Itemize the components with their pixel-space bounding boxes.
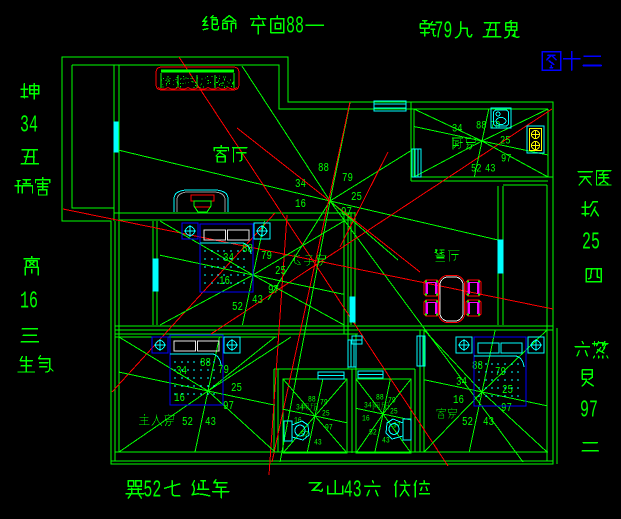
svg-text:43: 43 <box>314 439 322 448</box>
svg-text:88: 88 <box>200 357 211 370</box>
svg-text:25: 25 <box>582 230 600 257</box>
svg-text:25: 25 <box>322 410 330 419</box>
svg-text:43: 43 <box>252 294 263 307</box>
svg-text:52: 52 <box>182 416 193 429</box>
svg-text:34: 34 <box>295 178 306 191</box>
svg-text:79: 79 <box>320 399 328 408</box>
svg-text:88: 88 <box>318 162 329 175</box>
svg-text:16: 16 <box>362 415 370 424</box>
svg-text:25: 25 <box>351 191 362 204</box>
svg-text:52: 52 <box>369 429 377 438</box>
svg-text:79: 79 <box>261 250 272 263</box>
svg-text:25: 25 <box>231 382 242 395</box>
svg-text:97: 97 <box>325 424 333 433</box>
svg-text:88: 88 <box>308 396 316 405</box>
svg-text:25: 25 <box>275 265 286 278</box>
svg-text:79: 79 <box>218 364 229 377</box>
svg-text:43: 43 <box>344 478 362 505</box>
svg-text:88: 88 <box>376 394 384 403</box>
svg-text:79: 79 <box>434 19 452 46</box>
svg-text:97: 97 <box>501 153 512 165</box>
svg-text:34: 34 <box>456 376 467 389</box>
svg-text:25: 25 <box>502 384 513 397</box>
svg-text:79: 79 <box>388 397 396 406</box>
svg-text:97: 97 <box>580 398 598 425</box>
svg-text:34: 34 <box>176 365 187 378</box>
svg-text:16: 16 <box>295 198 306 211</box>
svg-text:34: 34 <box>364 402 372 411</box>
svg-text:52: 52 <box>471 163 482 175</box>
svg-text:25: 25 <box>500 135 511 147</box>
svg-text:88: 88 <box>286 14 304 41</box>
svg-text:25: 25 <box>390 408 398 417</box>
svg-text:52: 52 <box>143 478 161 505</box>
svg-text:79: 79 <box>342 172 353 185</box>
svg-text:97: 97 <box>393 422 401 431</box>
svg-text:34: 34 <box>452 123 463 135</box>
svg-text:34: 34 <box>20 113 38 140</box>
svg-text:43: 43 <box>485 163 496 175</box>
svg-text:52: 52 <box>462 416 473 429</box>
svg-text:43: 43 <box>205 416 216 429</box>
svg-text:34: 34 <box>296 404 304 413</box>
svg-text:88: 88 <box>476 120 487 132</box>
svg-text:34: 34 <box>223 252 234 265</box>
svg-text:43: 43 <box>483 416 494 429</box>
svg-text:97: 97 <box>501 402 512 415</box>
svg-text:97: 97 <box>268 284 279 297</box>
svg-text:16: 16 <box>453 394 464 407</box>
svg-text:52: 52 <box>232 301 243 314</box>
svg-text:43: 43 <box>382 437 390 446</box>
svg-text:16: 16 <box>219 275 230 288</box>
svg-text:16: 16 <box>20 289 38 316</box>
svg-text:16: 16 <box>174 392 185 405</box>
svg-text:79: 79 <box>495 366 506 379</box>
svg-text:97: 97 <box>223 400 234 413</box>
